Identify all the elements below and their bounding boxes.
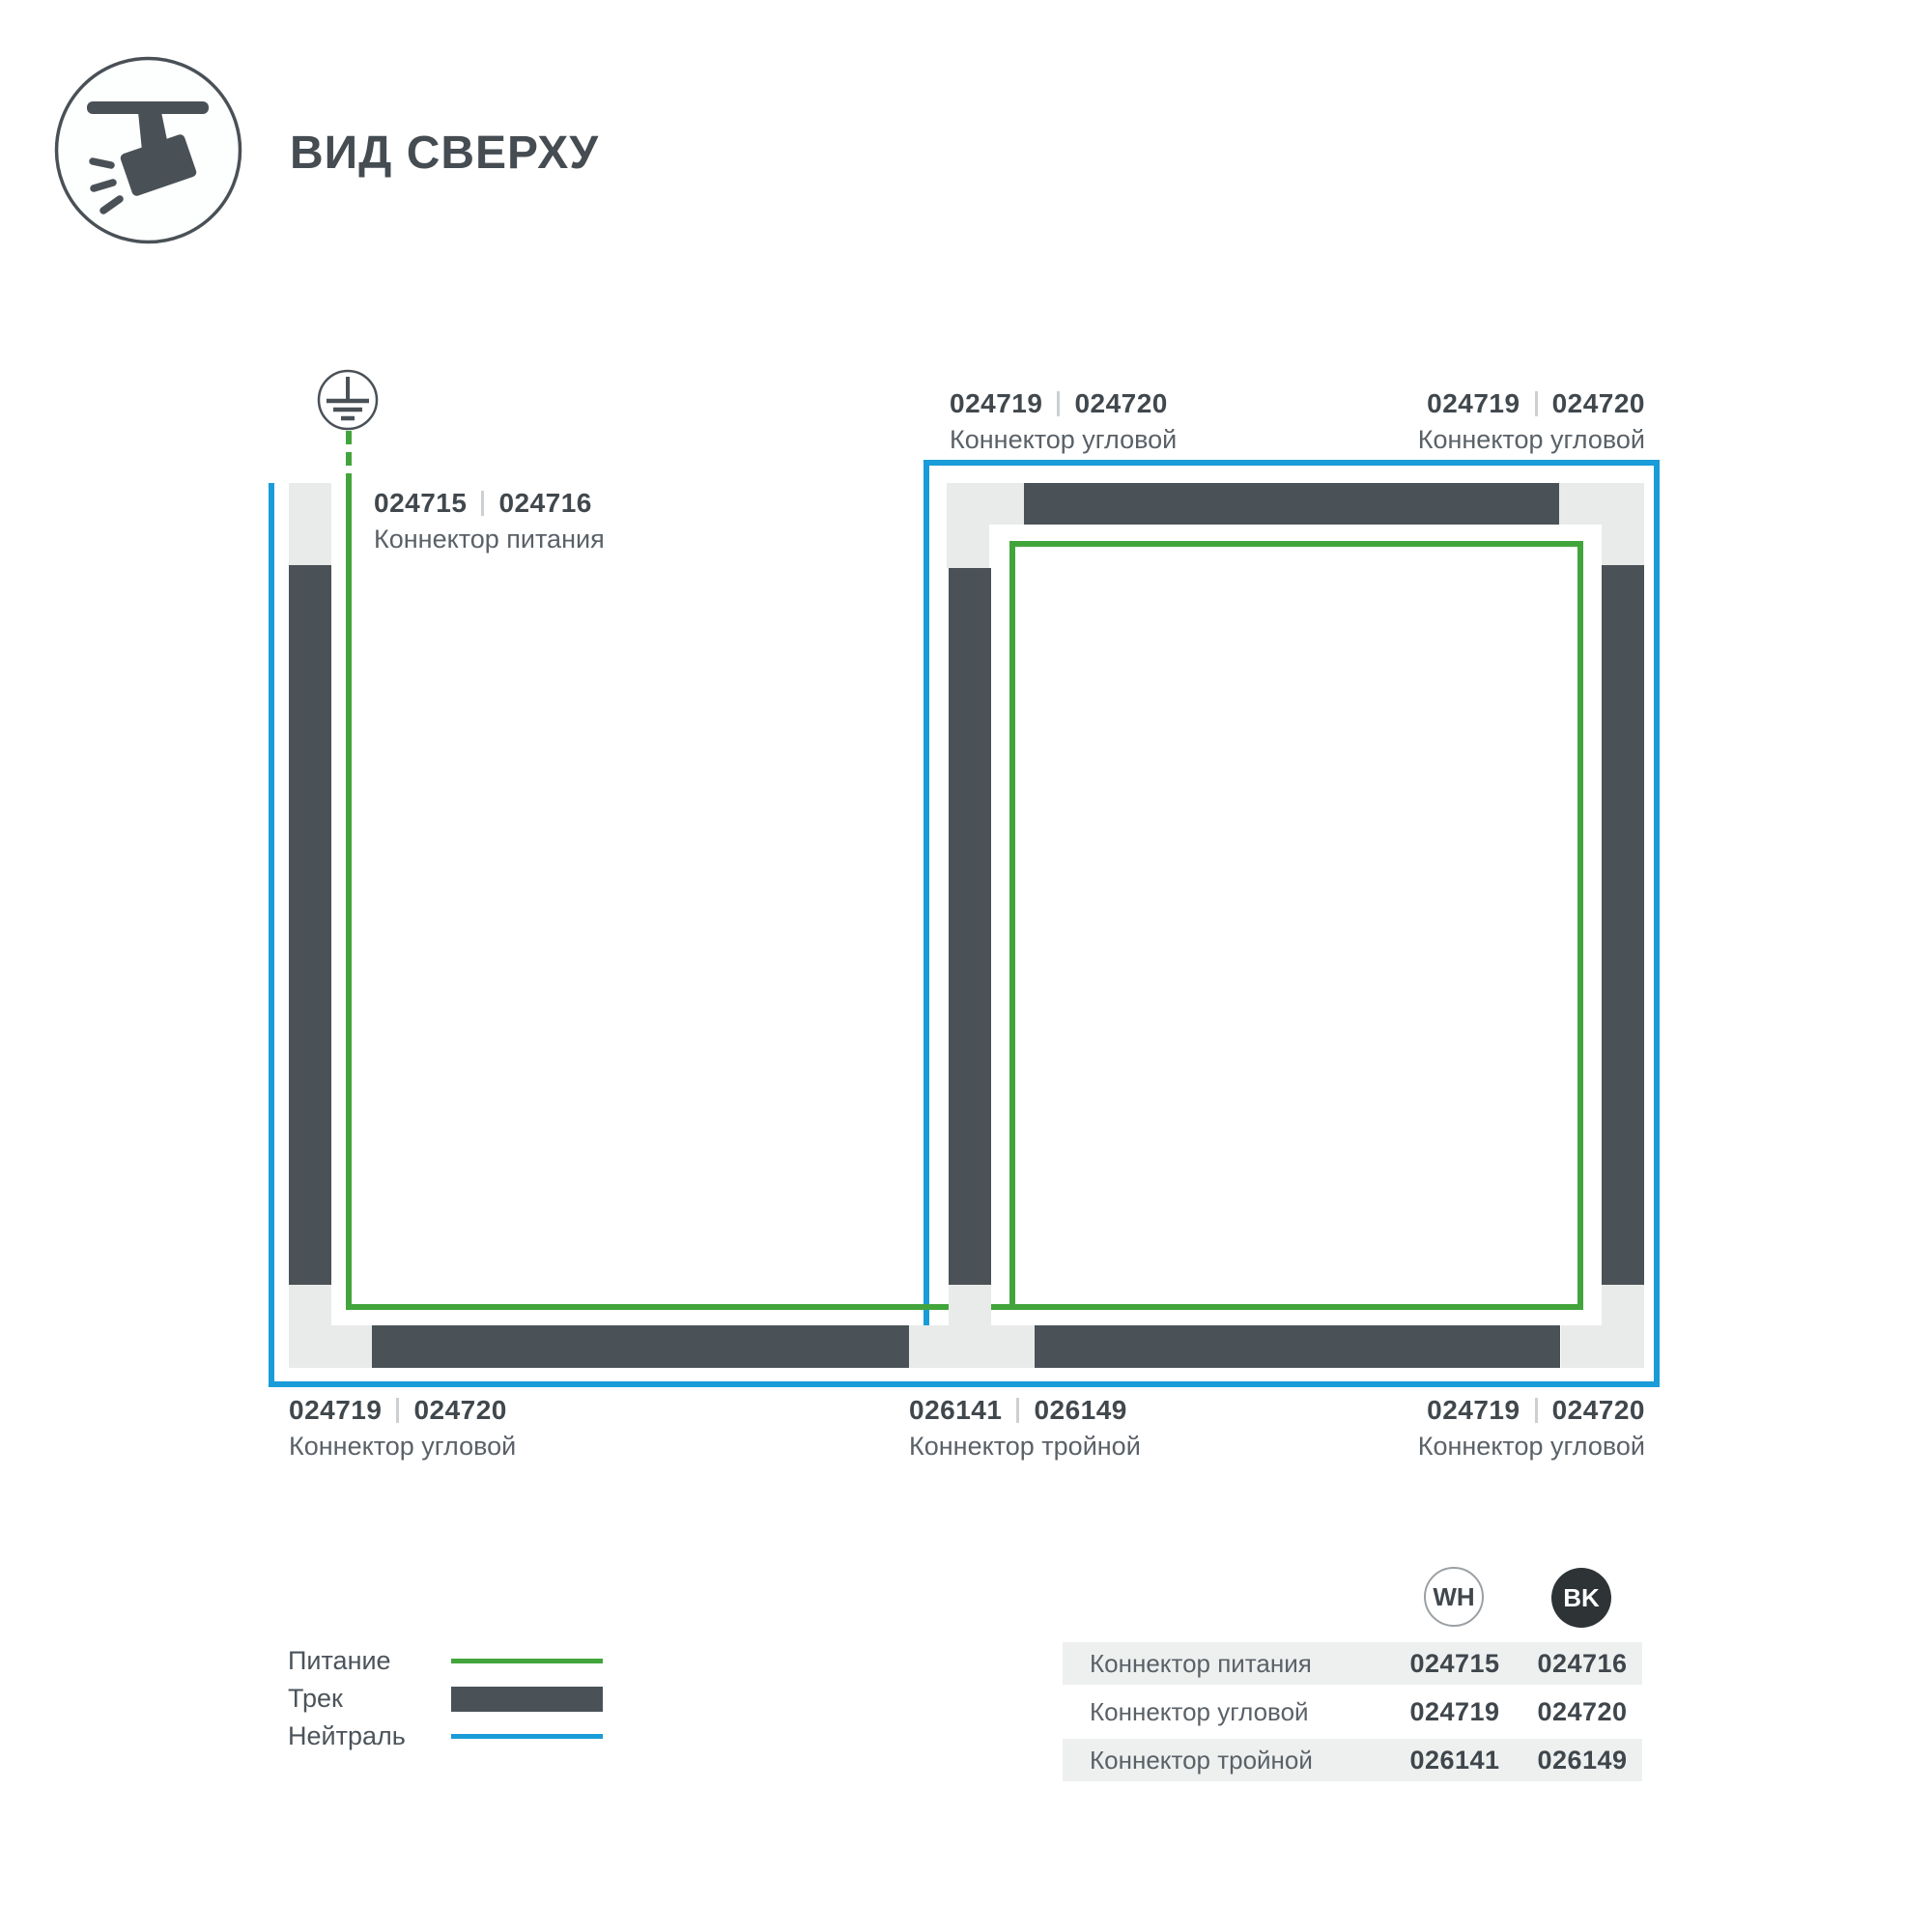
row-number-bk: 026149: [1524, 1746, 1640, 1776]
table-row: Коннектор питания 024715 024716: [1063, 1642, 1642, 1685]
label-part-numbers: 024715 024716: [374, 488, 605, 519]
neutral-line-right: [1654, 460, 1660, 1387]
connector-name: Коннектор угловой: [950, 425, 1177, 455]
blue-line-swatch: [451, 1734, 603, 1739]
corner-connector-piece: [1602, 1285, 1644, 1368]
legend: Питание Трек Нейтраль: [288, 1642, 603, 1755]
parts-table: WH BK Коннектор питания 024715 024716 Ко…: [1063, 1555, 1642, 1787]
bk-color-badge: BK: [1551, 1568, 1611, 1628]
corner-connector-piece: [289, 1325, 372, 1368]
part-number-bk: 024720: [1552, 388, 1645, 419]
legend-item-track: Трек: [288, 1680, 603, 1718]
part-number-wh: 026141: [909, 1395, 1002, 1426]
label-corner-bottom-right: 024719 024720 Коннектор угловой: [1352, 1395, 1645, 1462]
power-line-inner-top: [1009, 541, 1582, 547]
power-line-left: [346, 477, 352, 1310]
neutral-line-middle: [923, 460, 929, 1325]
part-number-wh: 024715: [374, 488, 467, 519]
label-corner-top-middle: 024719 024720 Коннектор угловой: [950, 388, 1177, 455]
legend-item-power: Питание: [288, 1642, 603, 1680]
part-number-wh: 024719: [289, 1395, 382, 1426]
row-name: Коннектор питания: [1090, 1649, 1397, 1679]
connector-name: Коннектор угловой: [289, 1432, 516, 1462]
table-row: Коннектор тройной 026141 026149: [1063, 1739, 1642, 1781]
separator: [1057, 391, 1060, 416]
table-header: WH BK: [1063, 1555, 1642, 1642]
corner-connector-piece: [1602, 483, 1644, 565]
separator: [1535, 1398, 1538, 1423]
green-line-swatch: [451, 1659, 603, 1663]
neutral-line-bottom: [269, 1381, 1660, 1387]
track-segment-right: [1602, 565, 1644, 1285]
track-spotlight-icon: [53, 55, 243, 245]
table-row: Коннектор угловой 024719 024720: [1063, 1690, 1642, 1733]
row-number-wh: 024719: [1397, 1697, 1513, 1727]
separator: [1535, 391, 1538, 416]
corner-connector-piece: [947, 483, 989, 568]
label-power-connector: 024715 024716 Коннектор питания: [374, 488, 605, 554]
part-number-wh: 024719: [1427, 1395, 1520, 1426]
track-segment-bottom-left: [372, 1325, 909, 1368]
part-number-bk: 026149: [1034, 1395, 1126, 1426]
row-number-bk: 024716: [1524, 1649, 1640, 1679]
connector-name: Коннектор тройной: [909, 1432, 1141, 1462]
wh-color-badge: WH: [1424, 1567, 1484, 1627]
row-name: Коннектор тройной: [1090, 1746, 1397, 1776]
connector-name: Коннектор угловой: [1352, 425, 1645, 455]
part-number-wh: 024719: [950, 388, 1042, 419]
track-segment-left: [289, 565, 331, 1285]
row-name: Коннектор угловой: [1090, 1697, 1397, 1727]
label-corner-top-right: 024719 024720 Коннектор угловой: [1352, 388, 1645, 455]
connector-name: Коннектор питания: [374, 525, 605, 554]
separator: [1016, 1398, 1019, 1423]
part-number-bk: 024720: [413, 1395, 506, 1426]
legend-label: Нейтраль: [288, 1721, 451, 1751]
label-corner-bottom-left: 024719 024720 Коннектор угловой: [289, 1395, 516, 1462]
row-number-wh: 024715: [1397, 1649, 1513, 1679]
label-part-numbers: 024719 024720: [950, 388, 1177, 419]
page-title: ВИД СВЕРХУ: [290, 127, 599, 180]
separator: [481, 491, 484, 516]
connector-name: Коннектор угловой: [1352, 1432, 1645, 1462]
track-segment-top: [1024, 483, 1559, 525]
part-number-bk: 024720: [1552, 1395, 1645, 1426]
track-segment-middle: [949, 568, 991, 1285]
part-number-wh: 024719: [1427, 388, 1520, 419]
earth-ground-icon: [317, 369, 379, 431]
triple-connector-piece: [909, 1325, 1035, 1368]
power-line-dashed: [346, 431, 352, 479]
part-number-bk: 024716: [498, 488, 591, 519]
neutral-line-top: [923, 460, 1660, 466]
neutral-line-left: [269, 483, 274, 1387]
power-line-inner-right: [1577, 541, 1583, 1310]
power-connector-piece: [289, 483, 331, 565]
label-part-numbers: 026141 026149: [909, 1395, 1141, 1426]
row-number-bk: 024720: [1524, 1697, 1640, 1727]
legend-label: Трек: [288, 1684, 451, 1714]
label-part-numbers: 024719 024720: [289, 1395, 516, 1426]
legend-label: Питание: [288, 1646, 451, 1676]
power-line-inner-left: [1009, 541, 1015, 1310]
separator: [396, 1398, 399, 1423]
page: ВИД СВЕРХУ 024715 024716: [0, 0, 1932, 1932]
row-number-wh: 026141: [1397, 1746, 1513, 1776]
dark-bar-swatch: [451, 1687, 603, 1712]
label-part-numbers: 024719 024720: [1352, 1395, 1645, 1426]
label-part-numbers: 024719 024720: [1352, 388, 1645, 419]
part-number-bk: 024720: [1074, 388, 1167, 419]
track-segment-bottom-right: [1035, 1325, 1560, 1368]
label-triple-bottom-middle: 026141 026149 Коннектор тройной: [909, 1395, 1141, 1462]
legend-item-neutral: Нейтраль: [288, 1718, 603, 1755]
